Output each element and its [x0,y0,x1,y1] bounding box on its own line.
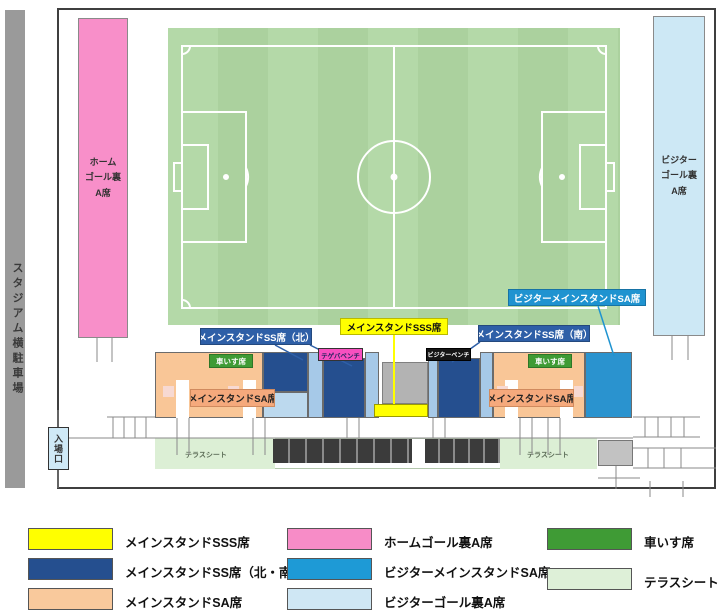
home-bench-label: テゲバベンチ [318,348,363,361]
visitor-bench-text: ビジターベンチ [428,350,470,359]
legend-swatch-terrace [547,568,632,590]
aisle-column [308,352,323,418]
legend-label-terrace: テラスシート [644,572,719,591]
main-ss-south-callout: メインスタンドSS席（南） [478,325,590,342]
main-sa-left-text: メインスタンドSA席 [190,391,275,405]
home-bench-text: テゲバベンチ [321,350,360,360]
pitch [168,28,620,325]
main-sa-right-text: メインスタンドSA席 [489,391,574,405]
section-main-ss-north-upper [263,352,308,392]
section-center-gray [382,362,428,404]
legend-text-visitor-sa: ビジターメインスタンドSA席 [384,566,550,580]
home-goal-label-line1: ホーム [85,155,121,170]
visitor-goal-label-line2: ゴール裏 [661,168,697,183]
legend-label-visitor-sa: ビジターメインスタンドSA席 [384,562,550,581]
legend-swatch-main-sss [28,528,113,550]
section-home-goal-a: ホーム ゴール裏 A席 [78,18,128,338]
legend-text-visitor-goal: ビジターゴール裏A席 [384,596,505,610]
legend-label-main-sss: メインスタンドSSS席 [125,532,250,551]
aisle-column [428,352,438,418]
legend-swatch-visitor-sa [287,558,372,580]
legend-text-wheelchair: 車いす席 [644,536,694,550]
legend-label-main-ss: メインスタンドSS席（北・南） [125,562,304,581]
legend-swatch-visitor-goal [287,588,372,610]
wheelchair-right-label: 車いす席 [535,356,565,367]
wheelchair-area-left: 車いす席 [209,354,253,368]
legend-label-home-goal: ホームゴール裏A席 [384,532,493,551]
main-ss-south-text: メインスタンドSS席（南） [478,327,590,341]
section-visitor-main-sa [585,352,632,418]
legend-swatch-home-goal [287,528,372,550]
wheelchair-area-right: 車いす席 [528,354,572,368]
visitor-main-sa-callout: ビジターメインスタンドSA席 [508,289,646,306]
visitor-goal-label-line3: A席 [661,184,697,199]
section-visitor-goal-a: ビジター ゴール裏 A席 [653,16,705,336]
legend-label-visitor-goal: ビジターゴール裏A席 [384,592,505,611]
legend-swatch-wheelchair [547,528,632,550]
main-ss-north-text: メインスタンドSS席（北） [200,330,312,344]
main-sss-callout: メインスタンドSSS席 [340,318,448,335]
wheelchair-left-label: 車いす席 [216,356,246,367]
parking-label: スタジアム横駐車場 [5,262,25,397]
aisle-column [480,352,493,418]
terrace-left-text: テラスシート [185,452,227,459]
home-goal-label-line2: ゴール裏 [85,170,121,185]
legend-text-terrace: テラスシート [644,576,719,590]
parking-strip: スタジアム横駐車場 [5,10,25,488]
legend-text-main-ss: メインスタンドSS席（北・南） [125,566,304,580]
home-goal-label-line3: A席 [85,186,121,201]
main-ss-north-callout: メインスタンドSS席（北） [200,328,312,345]
visitor-goal-label-line1: ビジター [661,153,697,168]
structure-block-row-right [425,439,500,463]
visitor-main-sa-text: ビジターメインスタンドSA席 [514,291,640,305]
structure-gray-box [598,440,633,466]
pitch-markings [168,28,620,325]
entrance-label: 入場口 [52,434,65,464]
legend-label-main-sa: メインスタンドSA席 [125,592,242,611]
legend-swatch-main-ss [28,558,113,580]
seat-block [574,386,583,397]
main-sa-right-label: メインスタンドSA席 [489,389,574,407]
seat-block [163,386,174,397]
section-main-ss-south [438,358,480,418]
main-sss-text: メインスタンドSSS席 [347,320,442,334]
section-main-sss [374,404,428,417]
entrance-box: 入場口 [48,427,69,470]
visitor-bench-label: ビジターベンチ [426,348,471,361]
aisle-gap [176,380,189,418]
terrace-right-label: テラスシート [527,450,569,460]
legend-text-home-goal: ホームゴール裏A席 [384,536,493,550]
structure-block-row-left [273,439,412,463]
main-sa-left-label: メインスタンドSA席 [190,389,275,407]
stadium-seating-map: スタジアム横駐車場 ホーム ゴール裏 A席 ビジター ゴール裏 A席 [0,0,722,616]
section-main-ss-north [323,358,365,418]
legend-swatch-main-sa [28,588,113,610]
legend-label-wheelchair: 車いす席 [644,532,694,551]
legend-text-main-sss: メインスタンドSSS席 [125,536,250,550]
legend-text-main-sa: メインスタンドSA席 [125,596,242,610]
terrace-left-label: テラスシート [185,450,227,460]
terrace-right-text: テラスシート [527,452,569,459]
